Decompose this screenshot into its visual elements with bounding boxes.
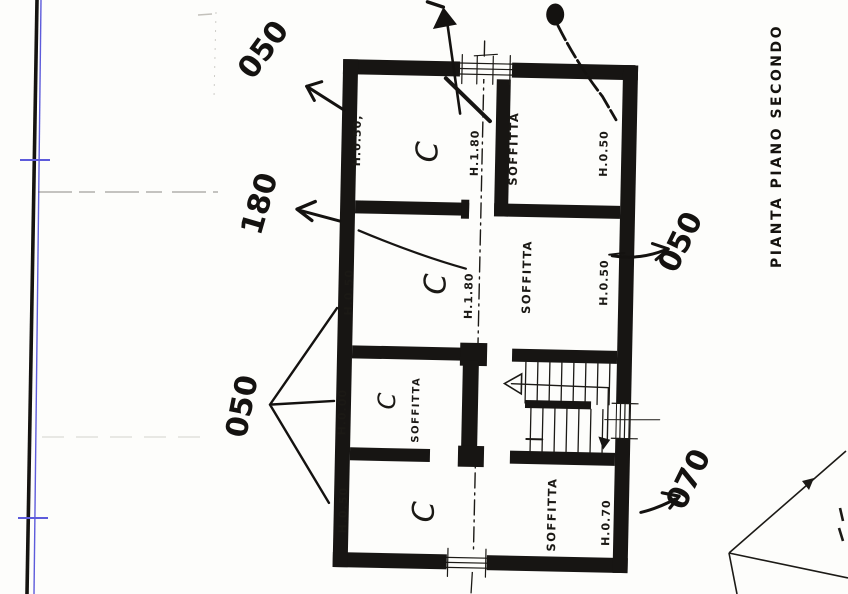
- adjacent-drawing-fragment: [729, 451, 848, 594]
- window-stair-rail: [620, 404, 621, 438]
- plan-group: 050 180 050 050 070 H.0.50, H.1.80 SOFFI…: [216, 0, 728, 594]
- stairwell-bottom-wall: [510, 451, 615, 466]
- window-stair-jamb: [611, 438, 637, 439]
- partition-small-room: [461, 361, 479, 450]
- annotation-070-bottom-right: 070: [659, 444, 718, 516]
- wall-right: [613, 65, 639, 573]
- room-labels: H.0.50, H.1.80 SOFFITTA H.0.50 H.0.50 H.…: [333, 108, 621, 553]
- wall-a-left: [355, 200, 469, 215]
- room-name-mid-right: SOFFITTA: [519, 240, 535, 314]
- window-top-mullion: [477, 56, 478, 84]
- scanned-floor-plan-page: 050 180 050 050 070 H.0.50, H.1.80 SOFFI…: [0, 0, 848, 594]
- room-name-top-right: SOFFITTA: [506, 112, 522, 186]
- window-bottom-jamb: [447, 548, 448, 576]
- stair-direction-arrowhead-end: [598, 437, 610, 450]
- c-mark-small-room: C: [373, 392, 401, 410]
- wall-c-pillar: [458, 446, 484, 468]
- annotation-050-right: 050: [651, 206, 710, 278]
- room-name-bottom: SOFFITTA: [544, 477, 560, 551]
- annotation-050-top-left: 050: [231, 14, 296, 85]
- stairwell-top-wall: [512, 349, 617, 364]
- arrow-top-center-head: [433, 7, 457, 29]
- wall-a-right: [494, 203, 620, 219]
- window-bottom-jamb: [485, 549, 486, 577]
- outer-walls: [333, 59, 639, 573]
- height-mid-axis: H.1.80: [462, 272, 476, 319]
- room-name-small: SOFFITTA: [410, 377, 422, 443]
- window-bottom-rail: [447, 567, 487, 568]
- height-mid-right: H.0.50: [597, 259, 611, 306]
- window-stair: [604, 403, 660, 439]
- c-mark-bottom-room: C: [407, 501, 442, 523]
- stair-treads-lower: [530, 408, 603, 452]
- window-stair-rail: [624, 404, 625, 438]
- window-top-mullion: [493, 56, 494, 84]
- fragment-line-right: [729, 553, 848, 578]
- fragment-line-down: [729, 553, 737, 594]
- faint-corner-tick: [198, 14, 212, 15]
- stair-treads-upper: [525, 362, 610, 405]
- wall-a-left-cap: [461, 200, 469, 219]
- stair-landing-divider: [525, 400, 591, 409]
- window-stair-axis: [605, 419, 660, 421]
- c-marks: C C C C: [371, 140, 457, 523]
- height-mid-left: H.0.50: [342, 269, 356, 316]
- window-stair-gap: [616, 404, 630, 438]
- window-stair-rail: [629, 404, 630, 438]
- c-mark-top-left: C: [410, 141, 445, 163]
- height-bottom-right: H.0.70: [599, 499, 613, 546]
- leader-lines-bottom-left: [268, 307, 337, 503]
- sheet-title-vertical: PIANTA PIANO SECONDO: [769, 24, 785, 268]
- window-bottom-rail: [447, 557, 487, 558]
- height-top-right: H.0.50: [597, 130, 611, 177]
- staircase: [503, 362, 612, 453]
- floor-plan-canvas: 050 180 050 050 070 H.0.50, H.1.80 SOFFI…: [0, 0, 848, 594]
- fragment-cutoff-text-marks: [839, 508, 843, 541]
- wall-c-left: [350, 447, 430, 462]
- interior-walls: [350, 74, 623, 469]
- top-right-ink-blob: [546, 3, 564, 25]
- window-stair-jamb: [612, 403, 638, 404]
- window-bottom-rail: [447, 562, 487, 563]
- height-top-left: H.0.50,: [350, 114, 364, 166]
- window-top-jamb: [510, 56, 511, 85]
- height-small-room: H.0.00: [335, 389, 349, 436]
- page-edge-artifacts: [18, 0, 218, 594]
- leader-curve-mid-room: [358, 230, 467, 268]
- wall-b-left: [352, 345, 461, 360]
- faint-fold-dots: [214, 12, 216, 98]
- window-bottom: [446, 548, 487, 577]
- annotation-050-bottom-left: 050: [219, 372, 265, 440]
- height-bottom-left: H.0.50: [336, 487, 350, 534]
- arrow-top-center-tail: [427, 2, 443, 7]
- height-top-axis: H.1.80: [468, 129, 482, 176]
- window-top-jamb: [462, 55, 463, 84]
- fragment-line-upper: [729, 451, 846, 553]
- c-mark-mid-left: C: [418, 273, 453, 295]
- annotation-180-left: 180: [234, 169, 285, 239]
